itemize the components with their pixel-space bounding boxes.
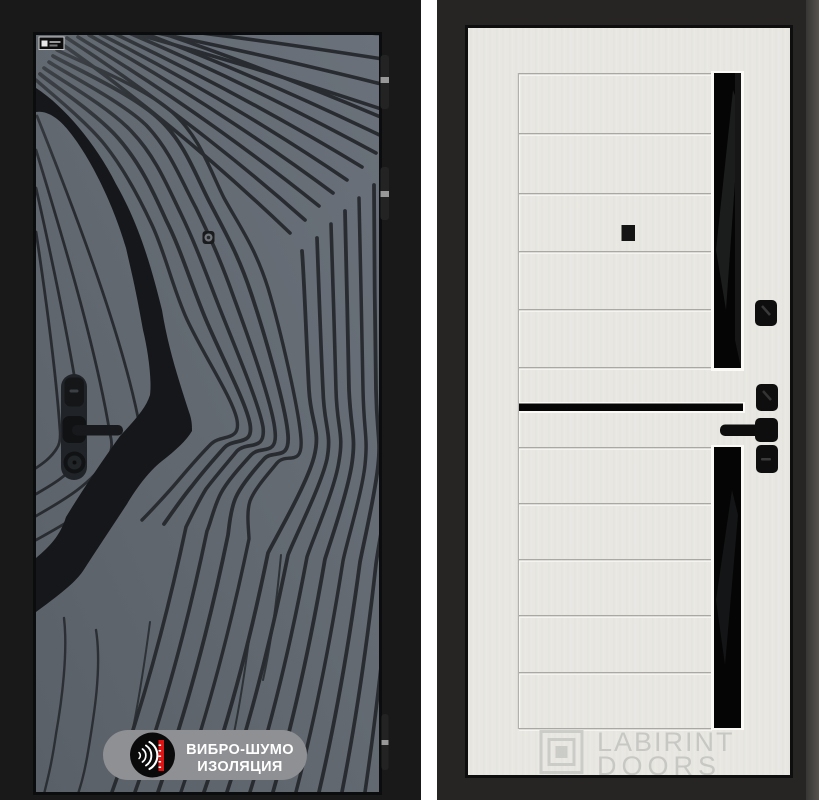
svg-text:ВИБРО-ШУМО: ВИБРО-ШУМО — [186, 742, 294, 758]
svg-text:ИЗОЛЯЦИЯ: ИЗОЛЯЦИЯ — [197, 759, 282, 775]
